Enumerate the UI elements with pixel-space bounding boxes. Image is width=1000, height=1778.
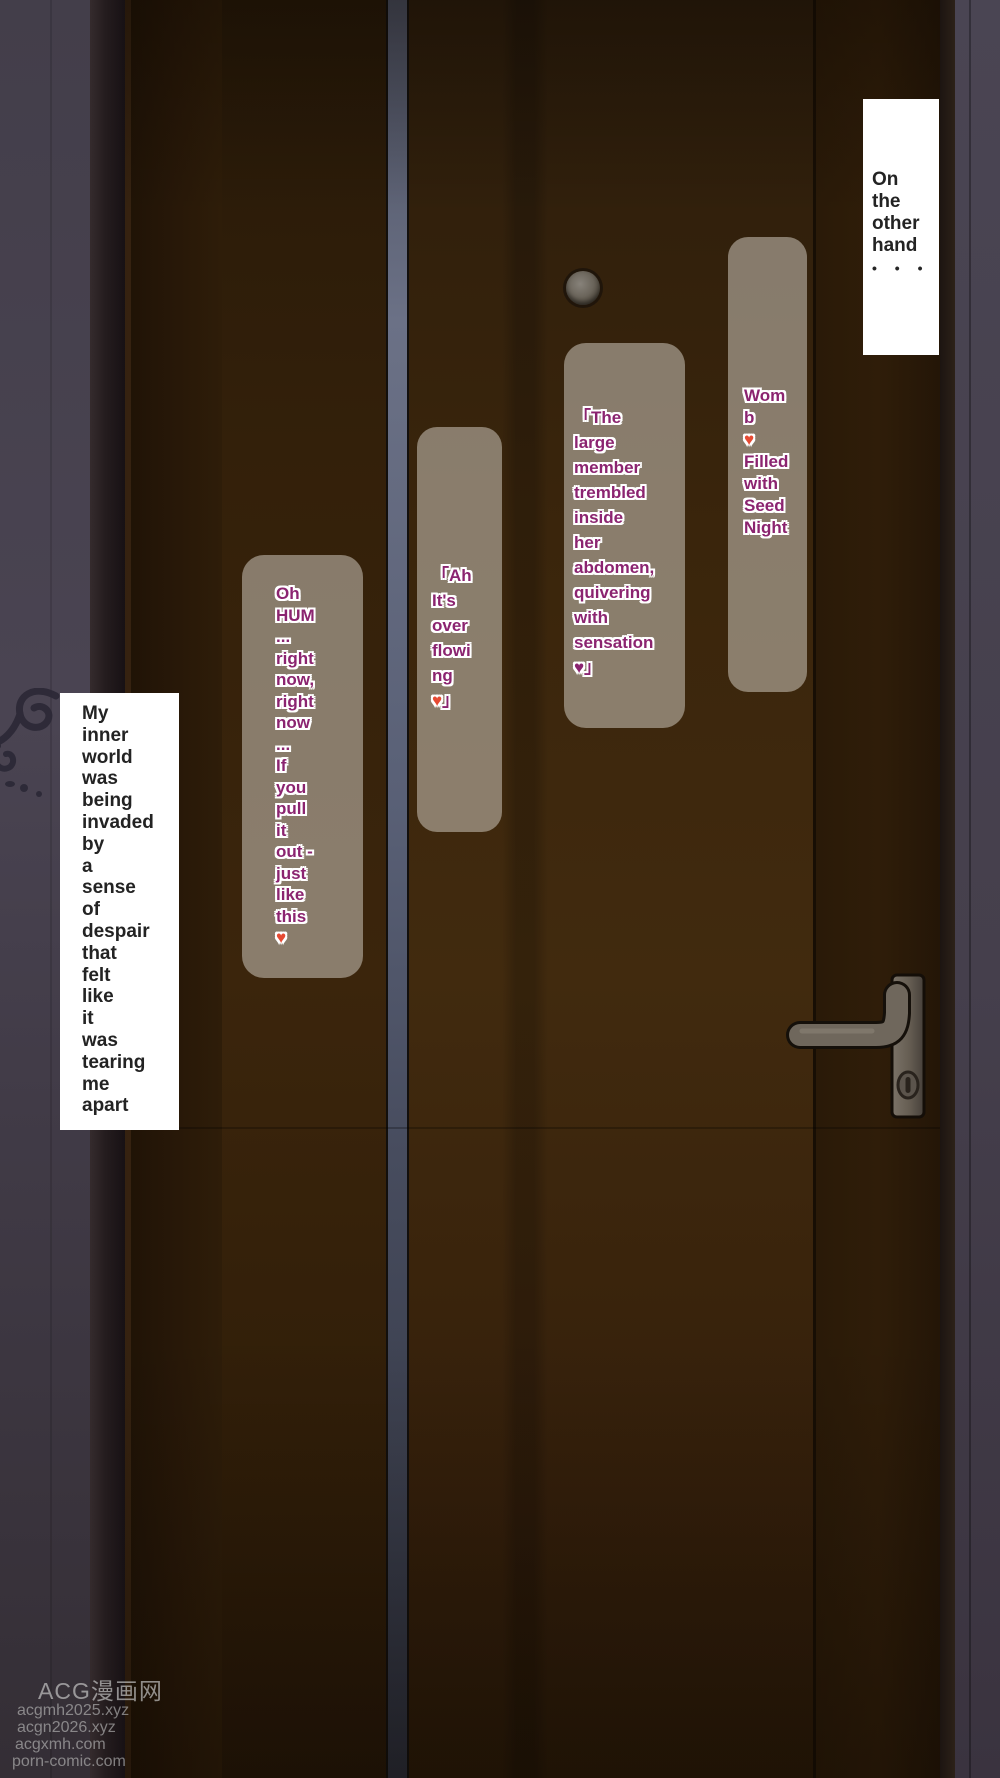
wall-seam xyxy=(50,0,52,1778)
speech-bubble-member: 「The large member trembled inside her ab… xyxy=(564,343,685,728)
narration-text: My inner world was being invaded by a se… xyxy=(82,703,175,1117)
watermark-url: porn-comic.com xyxy=(12,1753,126,1771)
door-horizontal-seam xyxy=(125,1127,940,1129)
watermark-url: acgn2026.xyz xyxy=(17,1719,116,1737)
speech-bubble-overflowing: 「Ah It's over flowi ng ♥」 xyxy=(417,427,502,832)
door-peephole xyxy=(566,271,600,305)
closing-bracket: 」 xyxy=(442,691,459,710)
keyhole-slot xyxy=(906,1077,911,1093)
comic-page: Oh HUM ... right now, right now ... If y… xyxy=(0,0,1000,1778)
ellipsis-dots: • • • xyxy=(872,260,939,276)
narration-box-left: My inner world was being invaded by a se… xyxy=(60,693,179,1130)
heart-icon: ♥ xyxy=(574,658,584,677)
watermark-url: acgmh2025.xyz xyxy=(17,1702,129,1720)
speech-text: Filled with Seed Night xyxy=(744,451,803,539)
door-groove-shadow xyxy=(502,0,548,1778)
speech-text: 「Ah It's over flowi ng xyxy=(432,563,498,688)
closing-bracket: 」 xyxy=(584,658,601,677)
watermark-url: acgxmh.com xyxy=(15,1736,106,1754)
watermark-brand: ACG漫画网 xyxy=(38,1672,163,1706)
speech-heart-line: ♥」 xyxy=(574,655,681,680)
heart-icon: ♥ xyxy=(276,927,357,949)
speech-bubble-oh-hum: Oh HUM ... right now, right now ... If y… xyxy=(242,555,363,978)
heart-icon: ♥ xyxy=(432,691,442,710)
speech-text: Oh HUM ... right now, right now ... If y… xyxy=(276,583,357,927)
speech-text: Wom b xyxy=(744,385,803,429)
speech-bubble-womb: Wom b ♥ Filled with Seed Night xyxy=(728,237,807,692)
door-gap-strip xyxy=(388,0,407,1778)
watermark: ACG漫画网 acgmh2025.xyz acgn2026.xyz acgxmh… xyxy=(0,1670,300,1778)
wall-ornament-flourish xyxy=(0,688,64,806)
speech-text: 「The large member trembled inside her ab… xyxy=(574,405,681,655)
heart-icon: ♥ xyxy=(744,429,803,451)
wall-seam xyxy=(969,0,971,1778)
narration-box-top-right: On the other hand • • • xyxy=(863,99,939,355)
narration-text: On the other hand xyxy=(872,169,939,257)
door-frame-right xyxy=(938,0,955,1778)
door-handle xyxy=(780,973,940,1123)
speech-heart-line: ♥」 xyxy=(432,688,498,713)
wall-right xyxy=(955,0,1000,1778)
